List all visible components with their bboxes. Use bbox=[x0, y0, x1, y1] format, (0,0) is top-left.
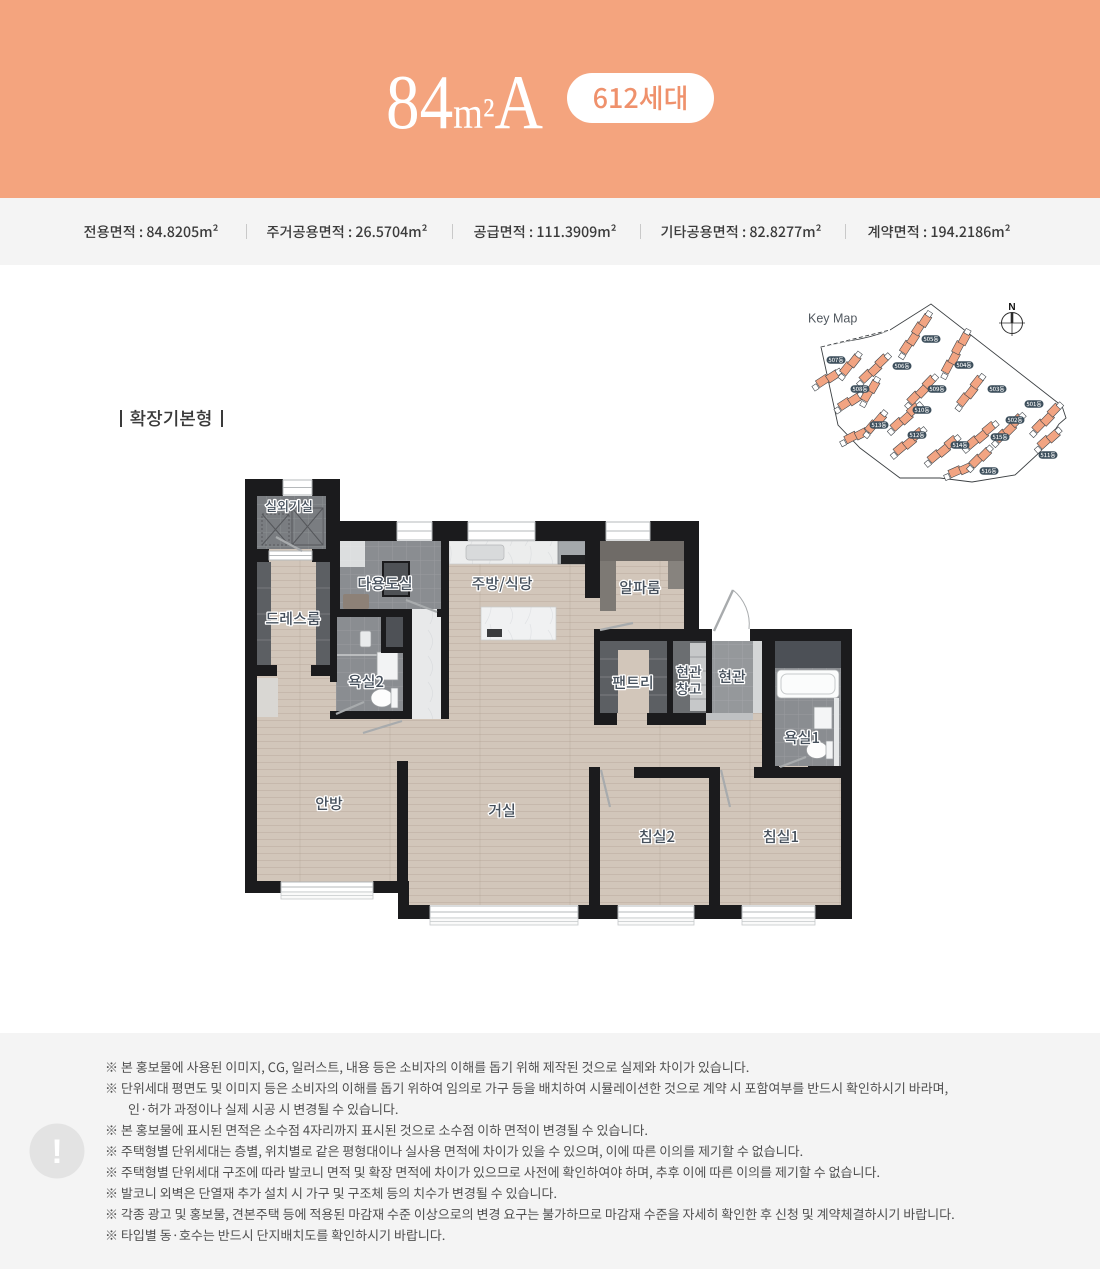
svg-text:N: N bbox=[1008, 302, 1015, 313]
svg-text:!: ! bbox=[51, 1133, 62, 1171]
svg-text:Key Map: Key Map bbox=[808, 312, 857, 326]
